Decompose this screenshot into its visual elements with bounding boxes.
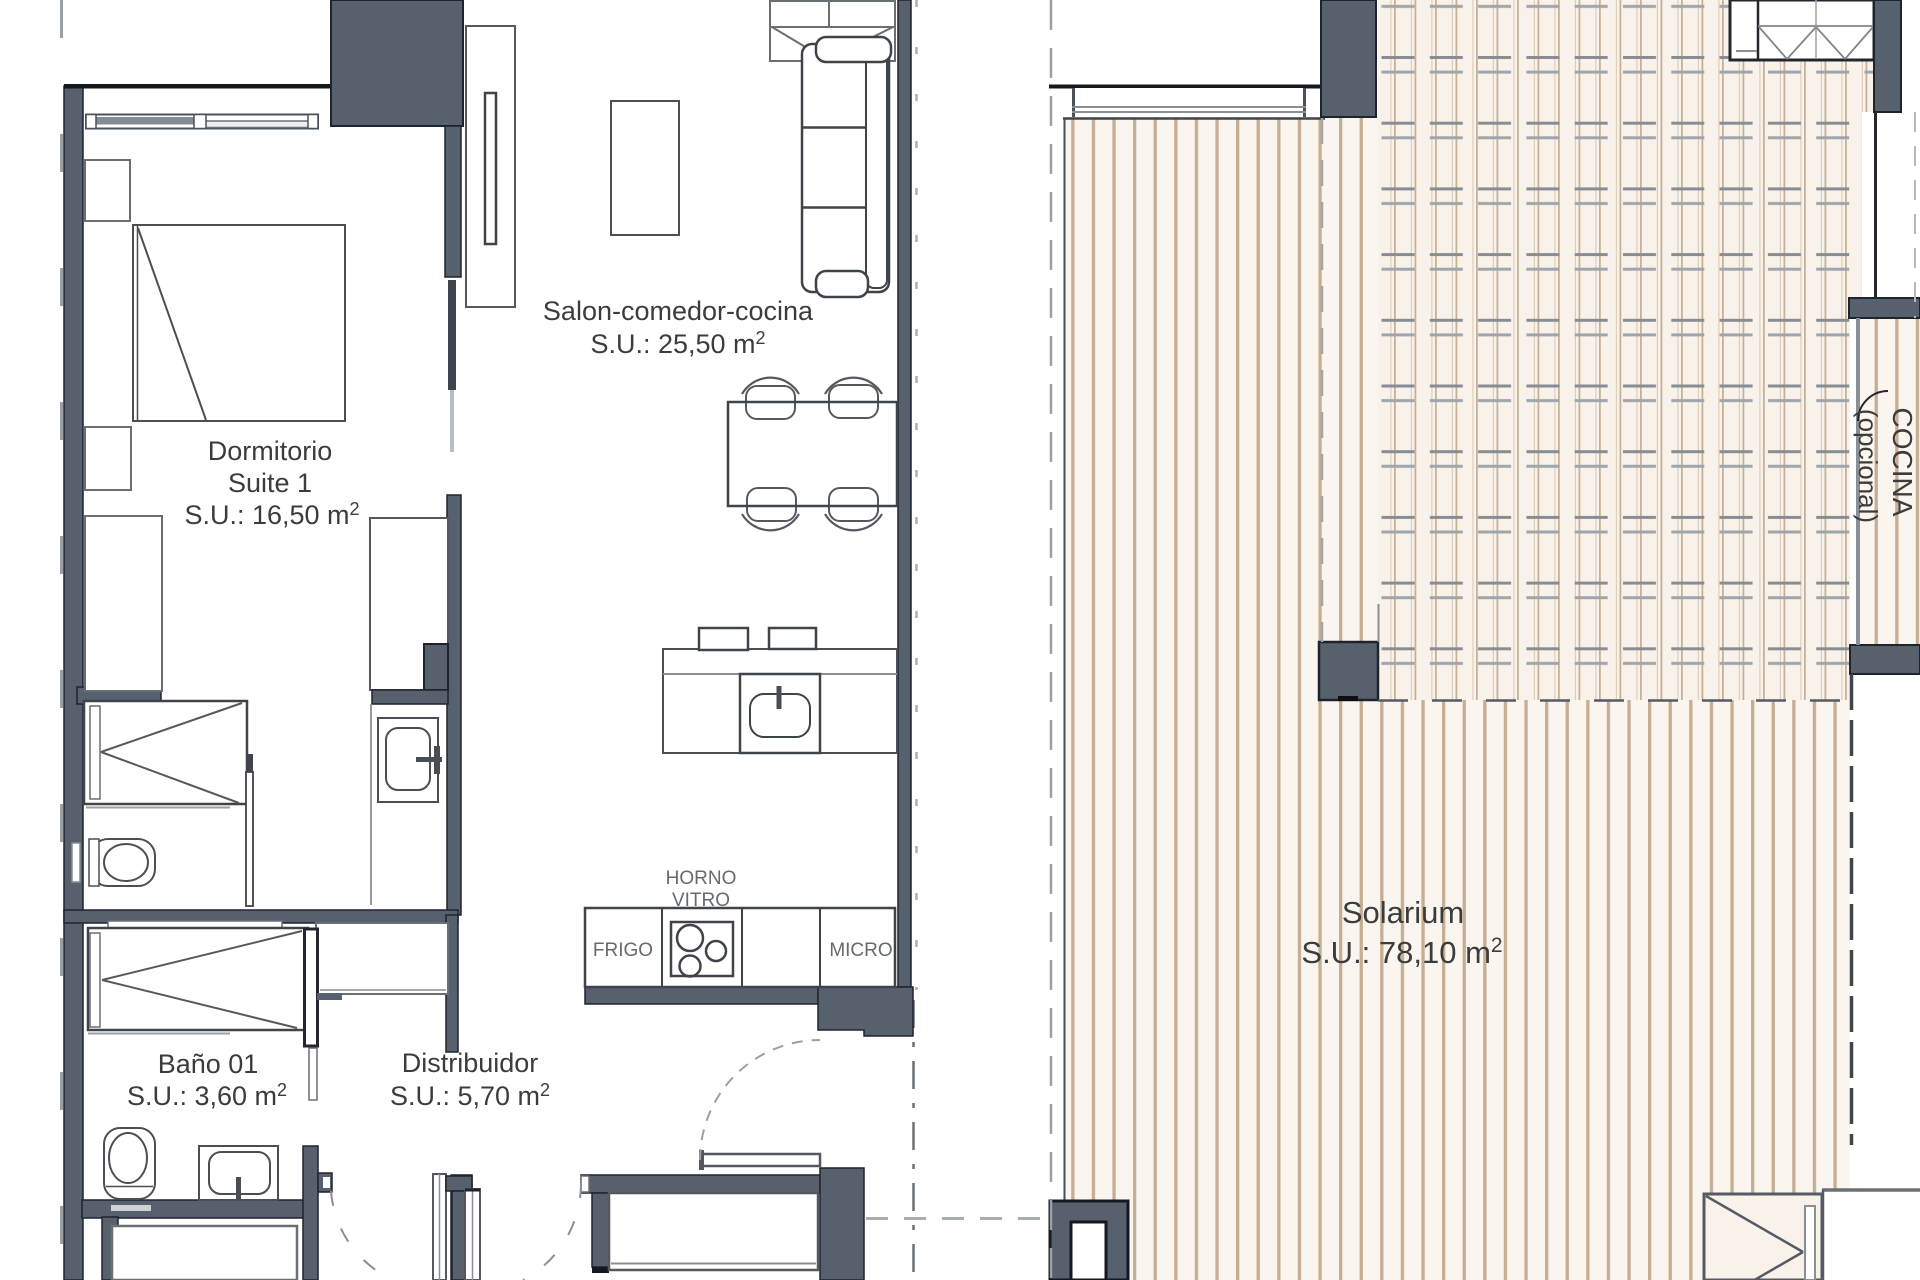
svg-text:HORNO: HORNO	[666, 868, 737, 889]
svg-text:Baño 01: Baño 01	[158, 1049, 259, 1079]
svg-text:Salon-comedor-cocina: Salon-comedor-cocina	[543, 296, 814, 326]
svg-text:Solarium: Solarium	[1342, 895, 1464, 930]
svg-text:FRIGO: FRIGO	[593, 940, 653, 961]
svg-text:S.U.: 3,60 m2: S.U.: 3,60 m2	[127, 1080, 287, 1111]
svg-text:MICRO: MICRO	[829, 940, 892, 961]
svg-text:Distribuidor: Distribuidor	[402, 1048, 539, 1078]
svg-text:S.U.: 5,70 m2: S.U.: 5,70 m2	[390, 1080, 550, 1111]
svg-text:COCINA: COCINA	[1887, 408, 1918, 517]
svg-text:VITRO: VITRO	[672, 890, 730, 911]
svg-text:S.U.: 16,50 m2: S.U.: 16,50 m2	[184, 499, 359, 530]
svg-text:S.U.: 78,10 m2: S.U.: 78,10 m2	[1301, 934, 1502, 970]
svg-text:Suite 1: Suite 1	[228, 468, 312, 498]
svg-text:S.U.: 25,50 m2: S.U.: 25,50 m2	[590, 328, 765, 359]
svg-text:Dormitorio: Dormitorio	[208, 436, 333, 466]
svg-text:(opcional): (opcional)	[1853, 409, 1883, 523]
